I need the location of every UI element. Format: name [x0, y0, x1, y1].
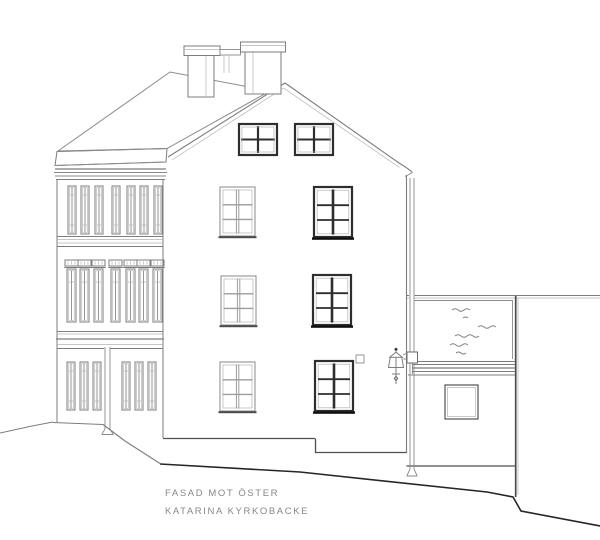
drawing-title: FASAD MOT ÖSTER — [165, 488, 279, 499]
chimney-left — [184, 46, 220, 97]
main-building-wall — [163, 83, 407, 453]
elevation-drawing: FASAD MOT ÖSTER KATARINA KYRKOBACKE — [0, 0, 600, 540]
courtyard-wall — [407, 296, 600, 498]
chimney-connector — [220, 50, 241, 74]
vegetation-marks — [450, 309, 496, 354]
wall-coping-band — [408, 362, 515, 376]
drawing-subtitle: KATARINA KYRKOBACKE — [165, 506, 309, 517]
elevation-drawing-sheet: FASAD MOT ÖSTER KATARINA KYRKOBACKE — [0, 0, 600, 540]
wall-opening — [445, 385, 478, 419]
downpipe-right — [407, 178, 418, 476]
chimney-right — [241, 42, 286, 94]
